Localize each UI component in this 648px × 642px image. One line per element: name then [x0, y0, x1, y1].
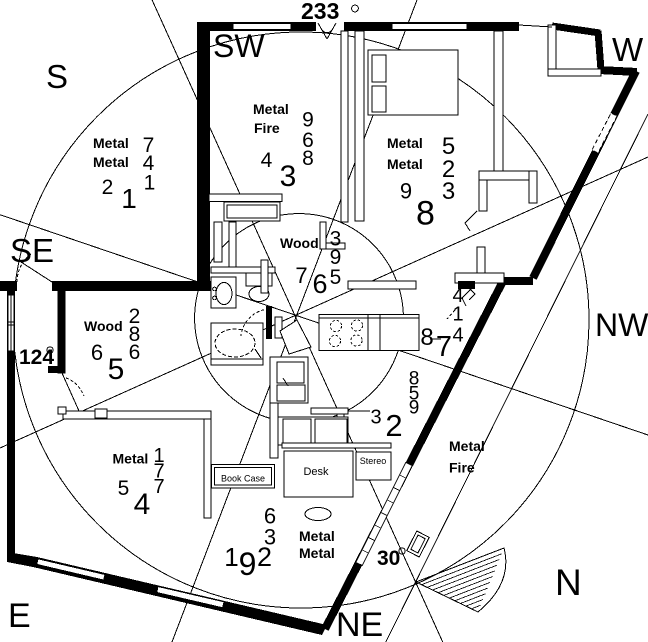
svg-text:Wood: Wood — [280, 235, 319, 251]
svg-text:233: 233 — [301, 0, 339, 24]
svg-text:5: 5 — [108, 353, 125, 386]
svg-text:NW: NW — [595, 307, 648, 343]
svg-text:8: 8 — [420, 324, 433, 351]
svg-text:Stereo: Stereo — [360, 456, 387, 466]
svg-text:Metal: Metal — [387, 135, 423, 151]
svg-text:4: 4 — [134, 488, 151, 521]
svg-text:S: S — [46, 58, 68, 95]
svg-text:4: 4 — [261, 149, 273, 172]
svg-text:Metal: Metal — [113, 451, 149, 467]
svg-text:3: 3 — [442, 178, 455, 205]
svg-text:1: 1 — [224, 542, 238, 572]
svg-text:Book Case: Book Case — [221, 474, 265, 484]
svg-text:1: 1 — [144, 172, 156, 195]
svg-text:6: 6 — [129, 341, 141, 364]
svg-text:9: 9 — [239, 546, 257, 582]
svg-text:3: 3 — [370, 407, 381, 429]
svg-text:7: 7 — [153, 476, 164, 498]
svg-text:Metal: Metal — [93, 154, 129, 170]
svg-text:Metal: Metal — [449, 438, 485, 454]
svg-text:Fire: Fire — [449, 460, 475, 476]
svg-text:5: 5 — [118, 477, 130, 500]
svg-text:8: 8 — [302, 147, 314, 170]
svg-text:4: 4 — [452, 325, 463, 347]
svg-text:2: 2 — [102, 176, 114, 199]
svg-text:Metal: Metal — [299, 545, 335, 561]
svg-text:E: E — [8, 597, 31, 635]
svg-text:7: 7 — [436, 331, 452, 363]
svg-text:N: N — [555, 562, 582, 603]
svg-text:124: 124 — [19, 346, 54, 369]
svg-text:SW: SW — [213, 28, 265, 64]
svg-text:8: 8 — [416, 195, 435, 233]
svg-text:9: 9 — [400, 179, 412, 204]
svg-text:2: 2 — [257, 542, 272, 572]
svg-text:Metal: Metal — [253, 101, 289, 117]
svg-text:9: 9 — [409, 398, 420, 419]
svg-text:SE: SE — [10, 232, 54, 269]
svg-text:7: 7 — [295, 263, 307, 288]
svg-text:Fire: Fire — [254, 120, 280, 136]
svg-text:Wood: Wood — [84, 318, 123, 334]
svg-text:NE: NE — [336, 606, 383, 642]
svg-text:1: 1 — [452, 304, 463, 326]
svg-text:Metal: Metal — [93, 135, 129, 151]
svg-text:W: W — [612, 31, 644, 68]
svg-text:6: 6 — [312, 269, 327, 299]
svg-text:6: 6 — [91, 340, 103, 365]
svg-text:1: 1 — [121, 183, 137, 214]
svg-text:30: 30 — [377, 547, 400, 570]
svg-text:Metal: Metal — [299, 528, 335, 544]
svg-text:Desk: Desk — [303, 466, 329, 478]
svg-text:3: 3 — [280, 160, 297, 193]
svg-text:2: 2 — [385, 408, 402, 443]
svg-text:5: 5 — [330, 266, 342, 289]
svg-text:Metal: Metal — [387, 156, 423, 172]
